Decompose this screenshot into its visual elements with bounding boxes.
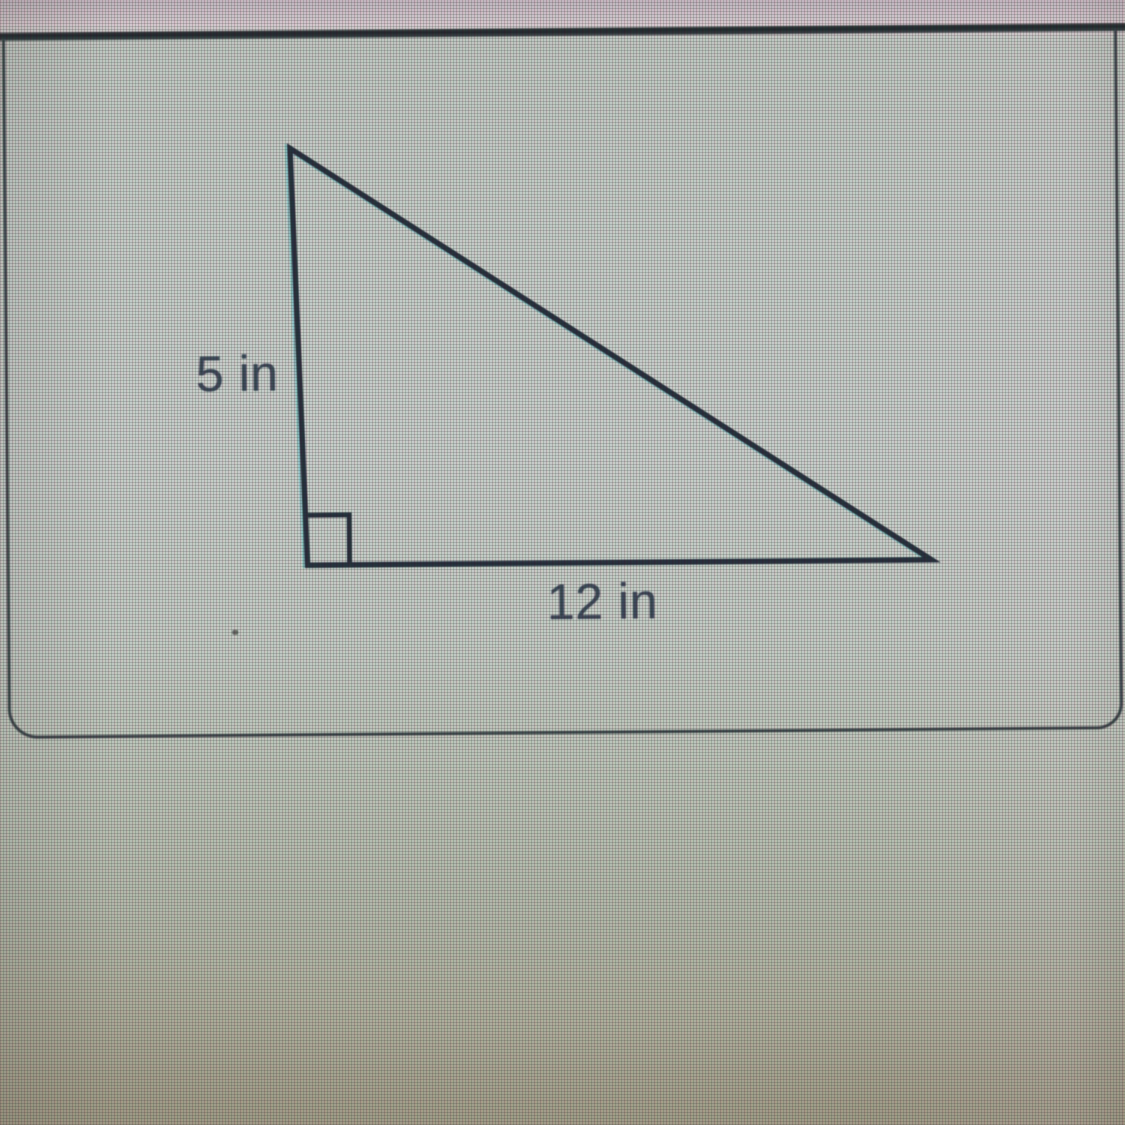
question-card: 5 in 12 in [1,21,1124,743]
right-angle-marker-icon [307,515,349,565]
screen-photo: 5 in 12 in [0,0,1125,1125]
horizontal-leg-label: 12 in [547,576,658,627]
triangle-diagram: 5 in 12 in [1,21,1124,743]
triangle-svg [1,21,1124,743]
dust-speck [232,630,238,635]
vertical-leg-label: 5 in [196,348,279,399]
